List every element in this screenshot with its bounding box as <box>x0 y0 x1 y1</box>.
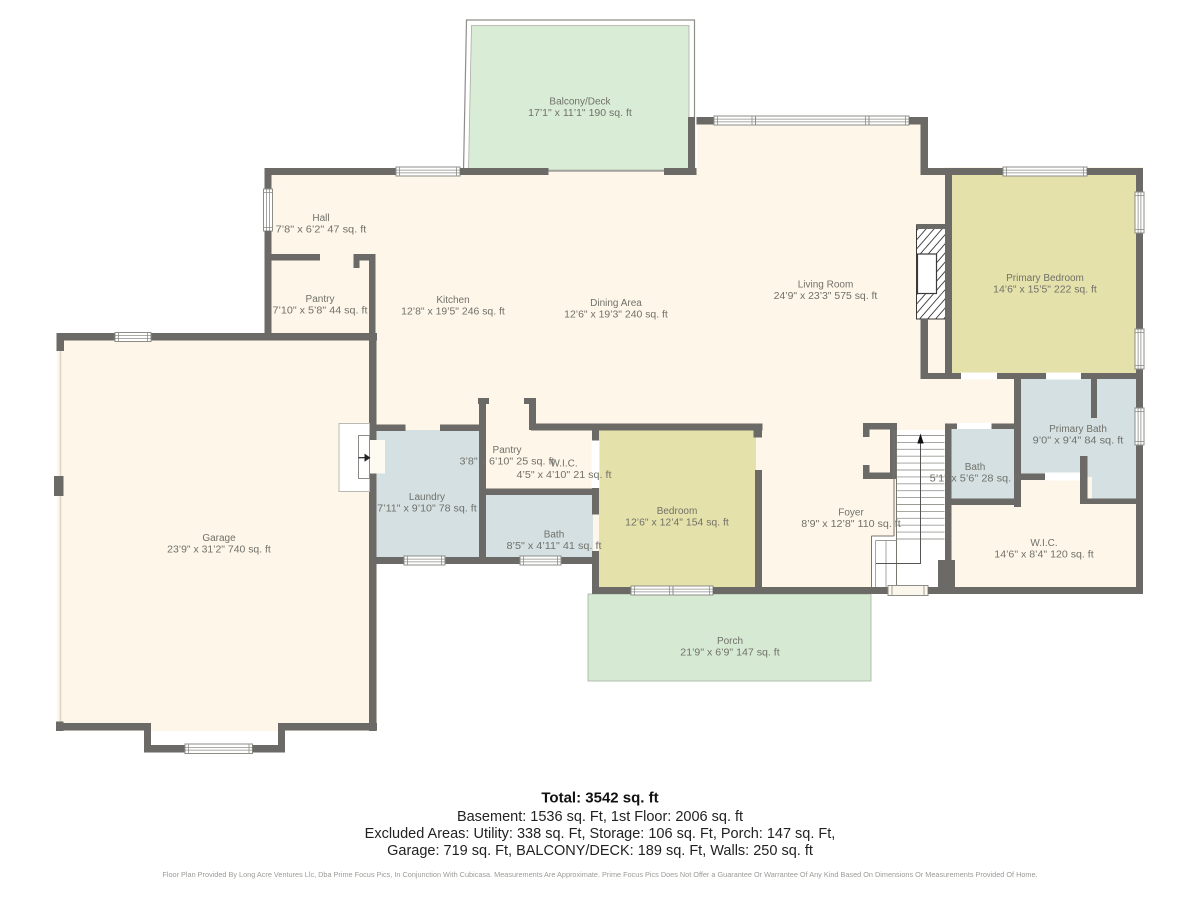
svg-text:Primary Bedroom: Primary Bedroom <box>1006 273 1084 284</box>
svg-text:Primary Bath: Primary Bath <box>1049 424 1107 435</box>
svg-text:Balcony/Deck: Balcony/Deck <box>549 97 611 108</box>
svg-text:Total: 3542 sq. ft: Total: 3542 sq. ft <box>541 790 658 807</box>
svg-text:24’9" x 23’3" 575 sq. ft: 24’9" x 23’3" 575 sq. ft <box>774 291 878 302</box>
svg-text:17’1" x 11’1" 190 sq. ft: 17’1" x 11’1" 190 sq. ft <box>528 108 632 119</box>
svg-text:12’8" x 19’5" 246 sq. ft: 12’8" x 19’5" 246 sq. ft <box>401 307 505 318</box>
svg-text:4’5" x 4’10" 21 sq. ft: 4’5" x 4’10" 21 sq. ft <box>517 470 612 481</box>
svg-text:Bedroom: Bedroom <box>657 506 698 517</box>
svg-text:7’10" x 5’8" 44 sq. ft: 7’10" x 5’8" 44 sq. ft <box>273 306 368 317</box>
svg-text:Bath: Bath <box>965 462 986 473</box>
svg-text:Garage: 719 sq. Ft, BALCONY/DE: Garage: 719 sq. Ft, BALCONY/DECK: 189 sq… <box>387 843 813 859</box>
svg-text:8’9" x 12’8" 110 sq. ft: 8’9" x 12’8" 110 sq. ft <box>801 519 901 530</box>
svg-text:Laundry: Laundry <box>409 492 445 503</box>
svg-text:9’0" x 9’4" 84 sq. ft: 9’0" x 9’4" 84 sq. ft <box>1033 436 1124 447</box>
svg-text:3’8" x 6’10" 25 sq. ft: 3’8" x 6’10" 25 sq. ft <box>460 457 555 468</box>
svg-text:12’6" x 12’4" 154 sq. ft: 12’6" x 12’4" 154 sq. ft <box>625 518 729 529</box>
svg-text:W.I.C.: W.I.C. <box>1030 538 1057 549</box>
svg-text:14’6" x 15’5" 222 sq. ft: 14’6" x 15’5" 222 sq. ft <box>993 285 1097 296</box>
svg-text:7’8" x 6’2" 47 sq. ft: 7’8" x 6’2" 47 sq. ft <box>276 225 367 236</box>
svg-text:Dining Area: Dining Area <box>590 298 642 309</box>
svg-text:Pantry: Pantry <box>306 294 335 305</box>
svg-text:Living Room: Living Room <box>798 280 854 291</box>
svg-text:Foyer: Foyer <box>838 508 864 519</box>
svg-text:Kitchen: Kitchen <box>436 295 469 306</box>
svg-text:Basement: 1536 sq. Ft, 1st Flo: Basement: 1536 sq. Ft, 1st Floor: 2006 s… <box>457 809 743 825</box>
svg-text:14’6" x 8’4" 120 sq. ft: 14’6" x 8’4" 120 sq. ft <box>994 550 1094 561</box>
svg-text:Garage: Garage <box>202 533 236 544</box>
svg-text:W.I.C.: W.I.C. <box>550 459 577 470</box>
svg-text:8’5" x 4’11" 41 sq. ft: 8’5" x 4’11" 41 sq. ft <box>507 541 602 552</box>
svg-text:12’6" x 19’3" 240 sq. ft: 12’6" x 19’3" 240 sq. ft <box>564 310 668 321</box>
svg-text:Hall: Hall <box>312 213 329 224</box>
svg-text:Pantry: Pantry <box>493 445 522 456</box>
svg-text:23’9" x 31’2" 740 sq. ft: 23’9" x 31’2" 740 sq. ft <box>167 545 271 556</box>
svg-text:Floor Plan Provided By Long Ac: Floor Plan Provided By Long Acre Venture… <box>162 870 1037 879</box>
svg-text:Bath: Bath <box>544 530 565 541</box>
svg-text:Porch: Porch <box>717 636 743 647</box>
svg-text:7’11" x 9’10" 78 sq. ft: 7’11" x 9’10" 78 sq. ft <box>377 504 477 515</box>
svg-text:Excluded Areas: Utility: 338 s: Excluded Areas: Utility: 338 sq. Ft, Sto… <box>365 826 836 842</box>
svg-text:21’9" x 6’9" 147 sq. ft: 21’9" x 6’9" 147 sq. ft <box>680 648 780 659</box>
svg-text:5’1" x 5’6" 28 sq. ft: 5’1" x 5’6" 28 sq. ft <box>930 474 1021 485</box>
